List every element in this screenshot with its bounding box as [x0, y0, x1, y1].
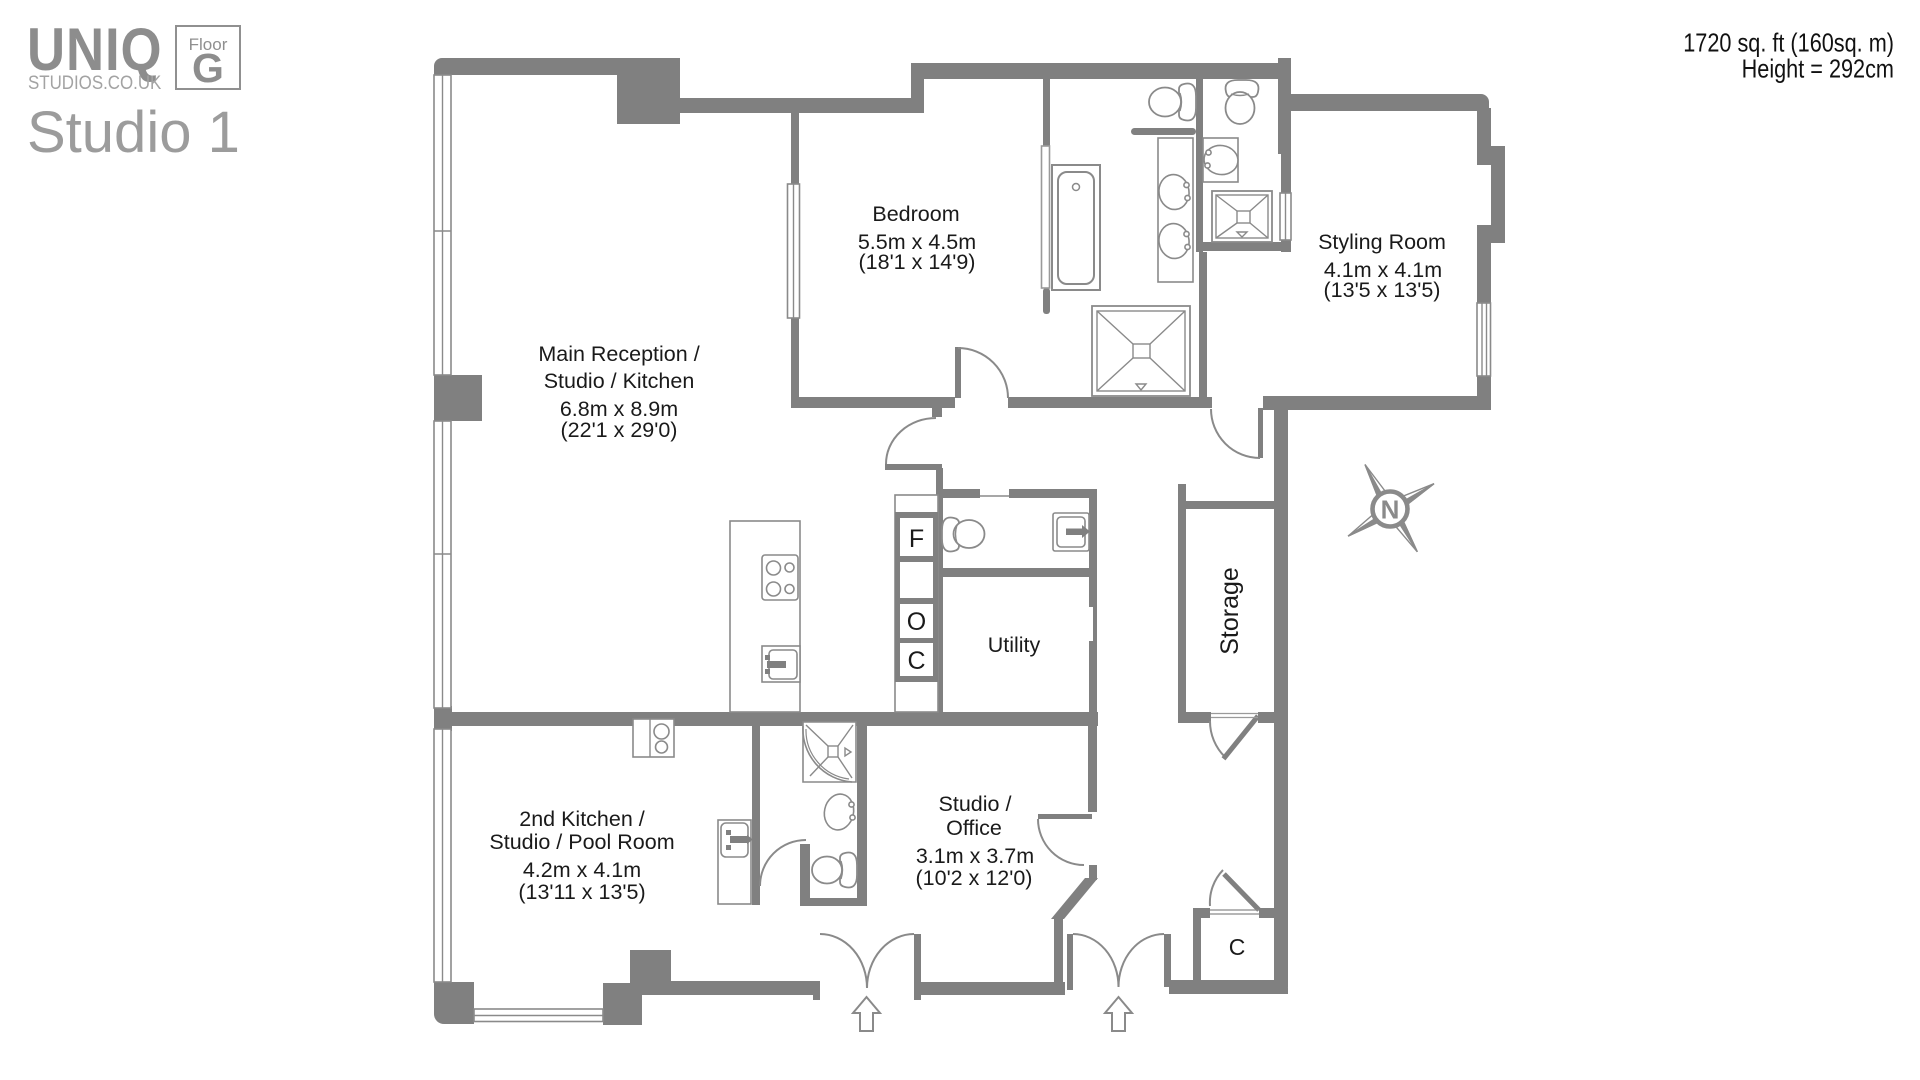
svg-text:F: F [909, 525, 924, 553]
svg-text:4.2m x 4.1m: 4.2m x 4.1m [523, 858, 641, 882]
svg-text:Office: Office [946, 816, 1002, 840]
svg-text:(13'5 x 13'5): (13'5 x 13'5) [1324, 278, 1441, 302]
svg-text:C: C [907, 647, 925, 675]
svg-text:2nd Kitchen /: 2nd Kitchen / [519, 807, 645, 831]
svg-text:Studio /: Studio / [939, 792, 1012, 816]
svg-text:Bedroom: Bedroom [872, 202, 959, 226]
svg-text:Main Reception /: Main Reception / [538, 342, 699, 366]
svg-text:Storage: Storage [1216, 567, 1244, 655]
svg-text:G: G [192, 45, 224, 91]
svg-text:C: C [1229, 934, 1246, 960]
svg-text:(13'11 x 13'5): (13'11 x 13'5) [518, 880, 645, 904]
svg-text:Utility: Utility [988, 633, 1041, 657]
svg-text:N: N [1381, 495, 1400, 525]
svg-text:Studio / Pool Room: Studio / Pool Room [489, 830, 674, 854]
svg-text:(18'1 x 14'9): (18'1 x 14'9) [859, 250, 976, 274]
svg-text:Studio 1: Studio 1 [27, 100, 240, 165]
svg-text:Styling Room: Styling Room [1318, 230, 1446, 254]
svg-text:(22'1 x 29'0): (22'1 x 29'0) [561, 418, 678, 442]
svg-text:1720 sq. ft (160sq. m): 1720 sq. ft (160sq. m) [1683, 30, 1894, 58]
svg-text:STUDIOS.CO.UK: STUDIOS.CO.UK [28, 72, 161, 93]
svg-text:Studio / Kitchen: Studio / Kitchen [544, 369, 695, 393]
svg-text:Height = 292cm: Height = 292cm [1742, 56, 1894, 84]
svg-text:(10'2 x 12'0): (10'2 x 12'0) [916, 866, 1033, 890]
svg-text:3.1m x 3.7m: 3.1m x 3.7m [916, 844, 1034, 868]
svg-text:O: O [907, 608, 926, 636]
